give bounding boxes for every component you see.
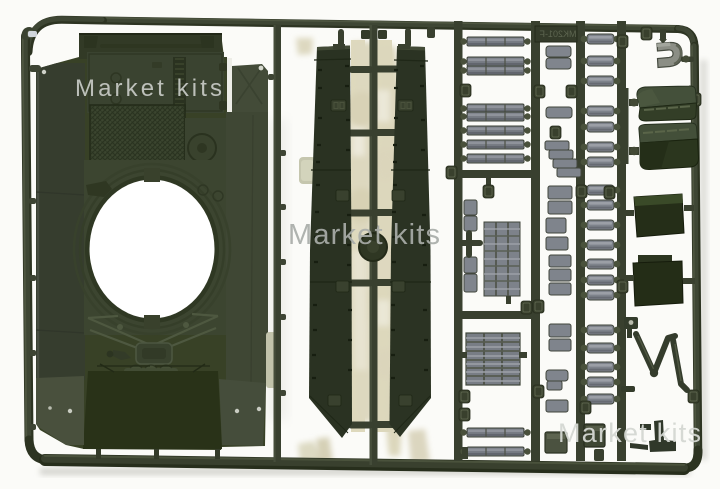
svg-text:Market kits: Market kits (288, 219, 440, 251)
svg-text:MK201-F: MK201-F (539, 29, 577, 39)
svg-text:Market kits: Market kits (558, 418, 701, 448)
